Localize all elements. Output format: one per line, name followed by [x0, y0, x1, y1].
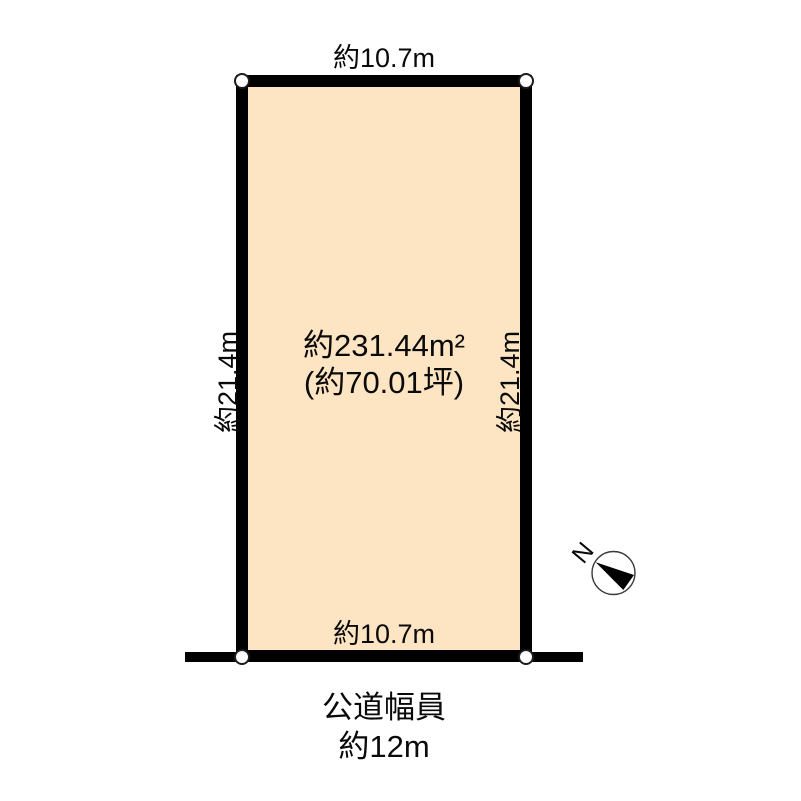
road-width-name: 公道幅員 — [236, 688, 532, 727]
corner-marker-bottom-right — [518, 649, 534, 665]
road-width-label: 公道幅員 約12m — [236, 688, 532, 766]
road-width-value: 約12m — [236, 727, 532, 766]
area-tsubo-label: (約70.01坪) — [236, 364, 532, 401]
corner-marker-top-left — [234, 73, 250, 89]
area-label: 約231.44m² (約70.01坪) — [236, 327, 532, 401]
area-sqm-label: 約231.44m² — [236, 327, 532, 364]
corner-marker-bottom-left — [234, 649, 250, 665]
corner-marker-top-right — [518, 73, 534, 89]
compass: N — [555, 525, 665, 625]
top-dimension-label: 約10.7m — [236, 44, 532, 72]
land-plot-diagram: 約10.7m 約10.7m 約21.4m 約21.4m 約231.44m² (約… — [0, 0, 801, 801]
bottom-dimension-label: 約10.7m — [236, 620, 532, 648]
